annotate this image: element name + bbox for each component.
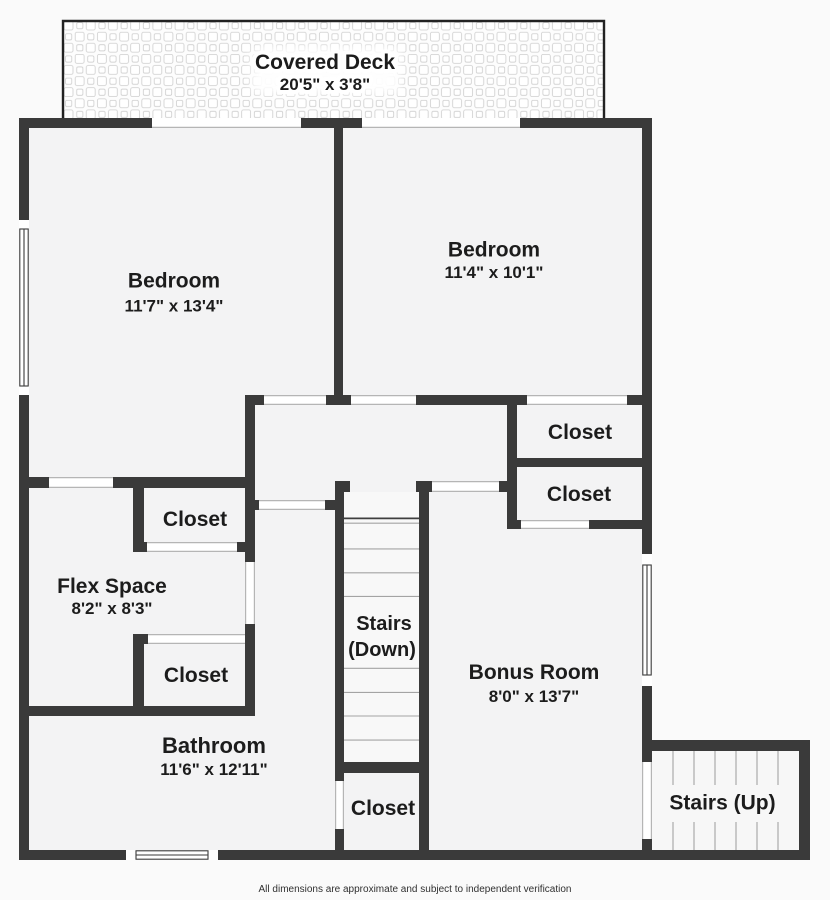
svg-text:Bonus Room: Bonus Room — [469, 661, 600, 684]
svg-text:8'0" x 13'7": 8'0" x 13'7" — [489, 687, 579, 706]
svg-text:Stairs (Up): Stairs (Up) — [669, 792, 775, 815]
svg-text:Closet: Closet — [548, 421, 612, 444]
svg-text:Bedroom: Bedroom — [448, 239, 540, 262]
svg-text:8'2" x 8'3": 8'2" x 8'3" — [72, 599, 153, 618]
svg-text:20'5" x 3'8": 20'5" x 3'8" — [280, 75, 370, 94]
svg-text:Bathroom: Bathroom — [162, 733, 266, 758]
svg-text:Covered Deck: Covered Deck — [255, 51, 395, 74]
svg-text:Closet: Closet — [164, 664, 228, 687]
svg-text:11'7" x 13'4": 11'7" x 13'4" — [125, 297, 224, 316]
svg-text:Stairs: Stairs — [356, 613, 412, 635]
svg-text:11'6" x 12'11": 11'6" x 12'11" — [160, 760, 267, 779]
svg-text:Closet: Closet — [547, 483, 611, 506]
svg-text:(Down): (Down) — [348, 639, 416, 661]
svg-text:Closet: Closet — [163, 508, 227, 531]
svg-text:Bedroom: Bedroom — [128, 270, 220, 293]
svg-text:All dimensions are approximate: All dimensions are approximate and subje… — [259, 884, 572, 895]
svg-text:11'4" x 10'1": 11'4" x 10'1" — [445, 263, 544, 282]
svg-text:Flex Space: Flex Space — [57, 575, 167, 598]
svg-text:Closet: Closet — [351, 797, 415, 820]
